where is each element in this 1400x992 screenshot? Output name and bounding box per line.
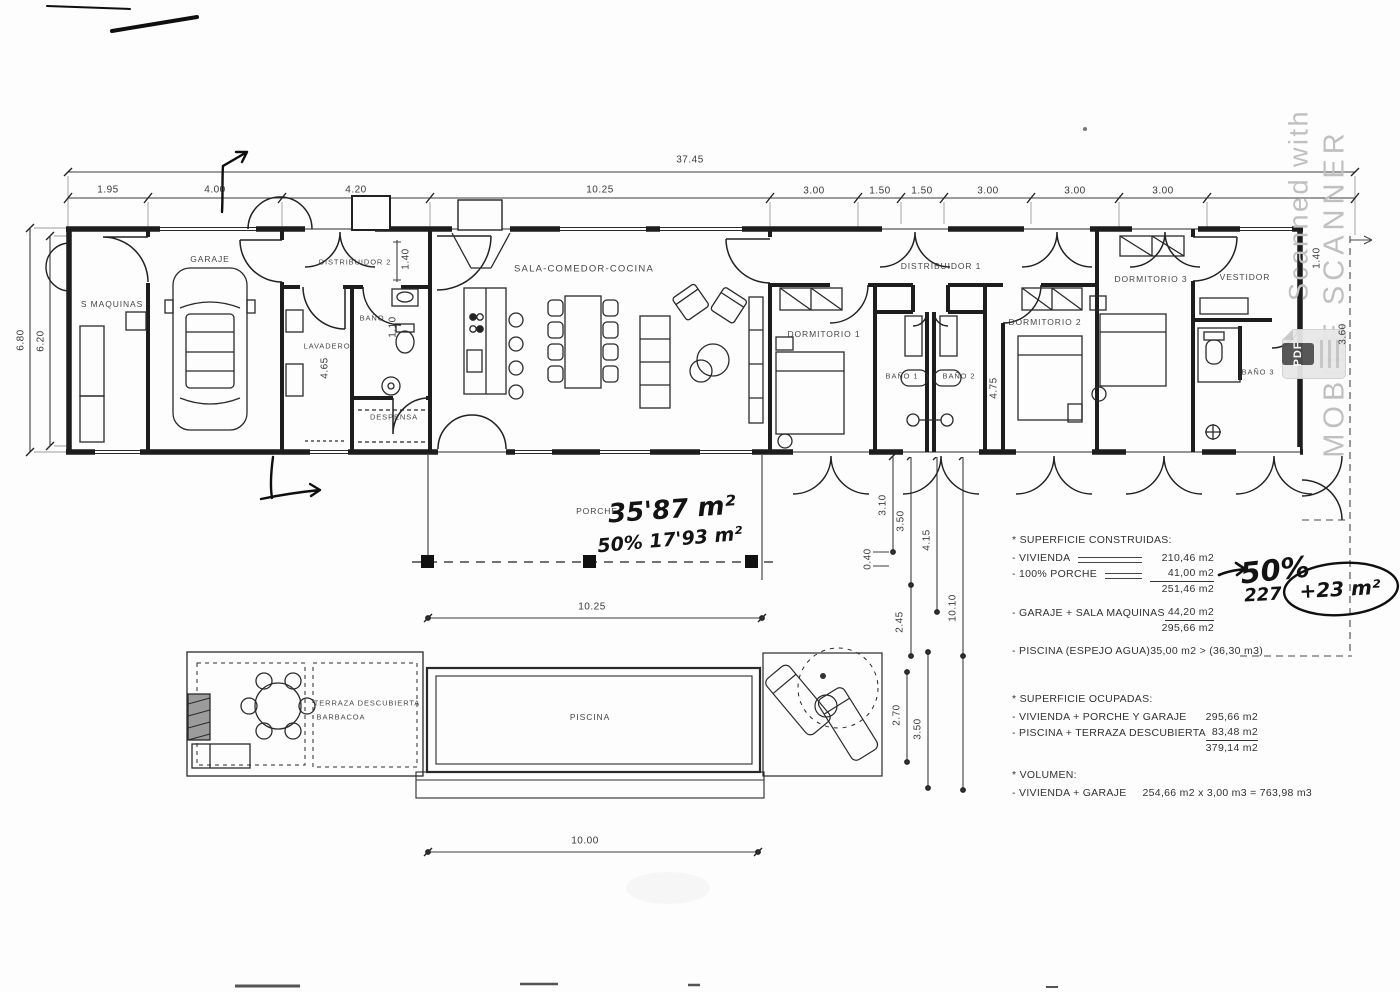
row-label: - VIVIENDA + PORCHE Y GARAJE — [1012, 710, 1187, 725]
dim-distribuidor2: 1.40 — [401, 248, 412, 269]
ruled-line — [1105, 573, 1142, 579]
table-total-row: 295,66 m2 — [1012, 621, 1214, 636]
scanned-floor-plan-page: Scanned with MOBILE SCANNER PDF 37.45 1.… — [0, 0, 1400, 992]
pool-group — [416, 668, 764, 798]
total-value: 295,66 m2 — [1150, 621, 1214, 636]
area-table-construidas: * SUPERFICIE CONSTRUIDAS: - VIVIENDA 210… — [1012, 533, 1214, 659]
handwritten-227: 227 — [1244, 584, 1283, 607]
subtotal-value: 251,46 m2 — [1150, 582, 1214, 597]
pdf-file-fold — [1282, 329, 1293, 340]
wall-features-group — [46, 196, 502, 291]
table-title: * SUPERFICIE OCUPADAS: — [1012, 692, 1153, 707]
room-label-distribuidor1: DISTRIBUIDOR 1 — [901, 261, 982, 271]
dim-top-6: 1.50 — [911, 186, 932, 197]
table-subtotal-row: 251,46 m2 — [1012, 582, 1214, 597]
dim-top-8: 3.00 — [1064, 186, 1085, 197]
dim-chain-4: 2.45 — [895, 611, 906, 632]
dim-chain-1: 3.50 — [896, 510, 907, 531]
table-row: - VIVIENDA + GARAJE 254,66 m2 x 3,00 m3 … — [1012, 786, 1342, 801]
dim-top-1: 4.00 — [204, 185, 225, 196]
dim-right-inner: 1.40 — [1312, 247, 1323, 268]
room-label-vestidor: VESTIDOR — [1220, 272, 1271, 282]
room-label-dormitorio1: DORMITORIO 1 — [788, 329, 861, 339]
row-value: 44,20 m2 — [1165, 605, 1214, 621]
room-label-barbacoa: BARBACOA — [317, 713, 366, 722]
dim-overall: 37.45 — [676, 155, 704, 166]
dim-top-5: 1.50 — [869, 186, 890, 197]
handwritten-circled-note: +23 m² — [1299, 575, 1381, 603]
pdf-text-line — [1328, 340, 1331, 368]
row-label: - PISCINA (ESPEJO AGUA) — [1012, 644, 1150, 659]
watermark-line2: MOBILE SCANNER — [1319, 128, 1352, 457]
dim-chain-2: 4.15 — [922, 529, 933, 550]
scan-artifacts-group — [235, 127, 1087, 987]
row-value: 254,66 m2 x 3,00 m3 = 763,98 m3 — [1143, 786, 1313, 801]
room-label-piscina: PISCINA — [570, 712, 610, 722]
dim-left-inner: 6.20 — [36, 330, 47, 351]
dim-pasillo: 4.75 — [989, 377, 1000, 398]
room-label-despensa: DESPENSA — [370, 413, 418, 422]
pdf-badge: PDF — [1282, 343, 1314, 365]
room-label-dormitorio2: DORMITORIO 2 — [1009, 317, 1082, 327]
room-label-bano1: BAÑO 1 — [886, 372, 919, 381]
dim-top-4: 3.00 — [803, 186, 824, 197]
terrace-group — [187, 652, 423, 776]
table-row: - PISCINA (ESPEJO AGUA) 35,00 m2 > (36,3… — [1012, 644, 1214, 659]
volume-table: * VOLUMEN: - VIVIENDA + GARAJE 254,66 m2… — [1012, 768, 1342, 801]
total-value: 379,14 m2 — [1188, 741, 1258, 756]
row-label: - 100% PORCHE — [1012, 567, 1097, 582]
room-label-s-maquinas: S MAQUINAS — [81, 299, 143, 309]
dim-chain-3: 0.40 — [863, 548, 874, 569]
dim-chain-0: 3.10 — [878, 494, 889, 515]
wall-openings-group — [95, 224, 1300, 457]
table-row: - VIVIENDA 210,46 m2 — [1012, 551, 1214, 566]
table-row: - VIVIENDA + PORCHE Y GARAJE 295,66 m2 — [1012, 710, 1258, 725]
room-label-sala: SALA-COMEDOR-COCINA — [514, 264, 654, 275]
dim-left-outer: 6.80 — [16, 329, 27, 350]
dim-porch: 10.25 — [578, 602, 606, 613]
partition-walls-group — [148, 229, 1272, 452]
dim-chain-6: 2.70 — [892, 704, 903, 725]
table-title: * VOLUMEN: — [1012, 768, 1077, 783]
row-value: 35,00 m2 > (36,30 m3) — [1150, 644, 1263, 659]
area-table-ocupadas: * SUPERFICIE OCUPADAS: - VIVIENDA + PORC… — [1012, 692, 1258, 756]
furniture-group — [80, 233, 1248, 448]
room-label-dormitorio3: DORMITORIO 3 — [1115, 274, 1188, 284]
table-row: - GARAJE + SALA MAQUINAS 44,20 m2 — [1012, 605, 1214, 621]
dim-pool: 10.00 — [571, 836, 599, 847]
row-label: - VIVIENDA + GARAJE — [1012, 786, 1127, 801]
row-label: - GARAJE + SALA MAQUINAS — [1012, 606, 1165, 621]
dim-top-9: 3.00 — [1152, 186, 1173, 197]
ruled-line — [1078, 557, 1142, 563]
pdf-text-line — [1320, 340, 1323, 368]
dim-top-2: 4.20 — [345, 185, 366, 196]
row-value: 41,00 m2 — [1150, 566, 1214, 582]
door-arcs-group — [103, 197, 1342, 520]
room-label-bano: BAÑO — [360, 314, 385, 323]
row-value: 295,66 m2 — [1188, 710, 1258, 725]
table-total-row: 379,14 m2 — [1012, 741, 1258, 756]
room-label-lavadero: LAVADERO — [304, 342, 351, 351]
lounge-group — [763, 648, 882, 776]
outer-walls-group — [66, 229, 1303, 452]
room-label-distribuidor2: DISTRIBUIDOR 2 — [319, 258, 392, 267]
row-label: - PISCINA + TERRAZA DESCUBIERTA — [1012, 726, 1206, 741]
window-lines-group — [95, 228, 1300, 454]
row-label: - VIVIENDA — [1012, 551, 1070, 566]
room-label-bano2: BAÑO 2 — [943, 372, 976, 381]
dim-chain-7: 3.50 — [913, 718, 924, 739]
row-value: 83,48 m2 — [1206, 725, 1258, 741]
table-row: - PISCINA + TERRAZA DESCUBIERTA 83,48 m2 — [1012, 725, 1258, 741]
dim-chain-5: 10.10 — [948, 594, 959, 622]
dim-top-3: 10.25 — [586, 185, 614, 196]
room-label-terraza: TERRAZA DESCUBIERTA — [314, 699, 420, 708]
pdf-file-icon: PDF — [1282, 329, 1346, 379]
table-row: - 100% PORCHE 41,00 m2 — [1012, 566, 1214, 582]
room-label-garaje: GARAJE — [190, 254, 229, 264]
dim-right-edge: 3.60 — [1338, 323, 1349, 344]
table-title: * SUPERFICIE CONSTRUIDAS: — [1012, 533, 1172, 548]
dim-lavadero: 4.65 — [320, 357, 331, 378]
dim-top-0: 1.95 — [97, 185, 118, 196]
row-value: 210,46 m2 — [1150, 551, 1214, 566]
watermark-line1: Scanned with — [1284, 109, 1315, 301]
dim-bano: 1.10 — [388, 316, 399, 337]
dim-top-7: 3.00 — [977, 186, 998, 197]
room-label-bano3: BAÑO 3 — [1242, 368, 1275, 377]
